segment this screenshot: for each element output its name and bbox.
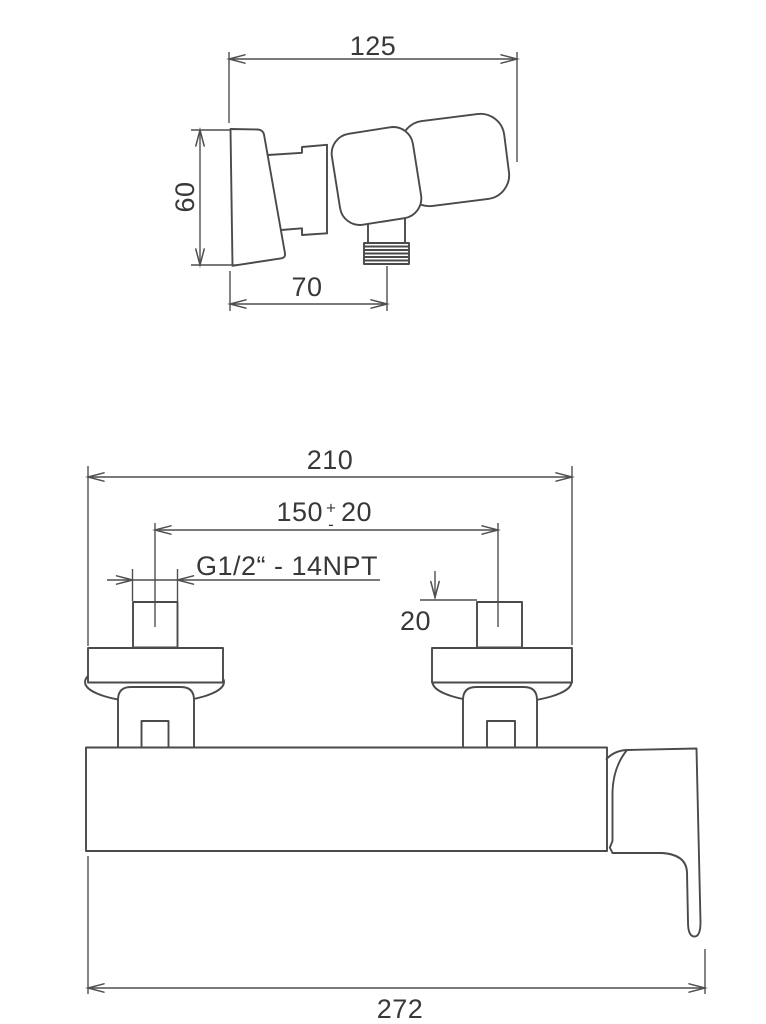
- valve-body-side-outline: [329, 124, 424, 228]
- dim-label-tolerance: 20: [341, 497, 372, 527]
- shower-mixer-dimension-drawing: 125 60 70: [0, 0, 766, 1024]
- lever-handle: [610, 749, 701, 937]
- mixer-body: [86, 748, 607, 852]
- dim-label-outlet-offset: 70: [291, 272, 322, 302]
- tolerance-minus-sign: -: [328, 515, 334, 534]
- connector-pipe-top-edge: [268, 145, 327, 155]
- dim-label-thread: G1/2“ - 14NPT: [196, 551, 378, 581]
- inlet-nipple-right: [477, 602, 522, 648]
- dim-label-center-distance: 150: [276, 497, 323, 527]
- side-view-object: [231, 111, 512, 266]
- dim-label-height: 60: [170, 181, 200, 212]
- front-view: 210 150 + - 20 G1/2“ - 14NPT 20: [85, 445, 705, 1024]
- dim-label-flange-span: 210: [307, 445, 354, 475]
- union-nut-notch-right: [487, 721, 515, 748]
- flange-plate-left: [88, 648, 223, 683]
- dim-label-nipple-length: 20: [400, 606, 431, 636]
- union-nut-notch-left: [142, 721, 169, 748]
- technical-drawing-canvas: 125 60 70: [0, 0, 766, 1024]
- side-view: 125 60 70: [170, 31, 517, 311]
- dim-label-overall-width: 272: [377, 994, 424, 1024]
- front-view-object: [85, 602, 701, 937]
- flange-plate-right: [432, 648, 572, 683]
- connector-pipe-bottom-edge: [281, 228, 327, 235]
- wall-bracket-outline: [231, 129, 286, 266]
- dim-label-depth: 125: [350, 31, 397, 61]
